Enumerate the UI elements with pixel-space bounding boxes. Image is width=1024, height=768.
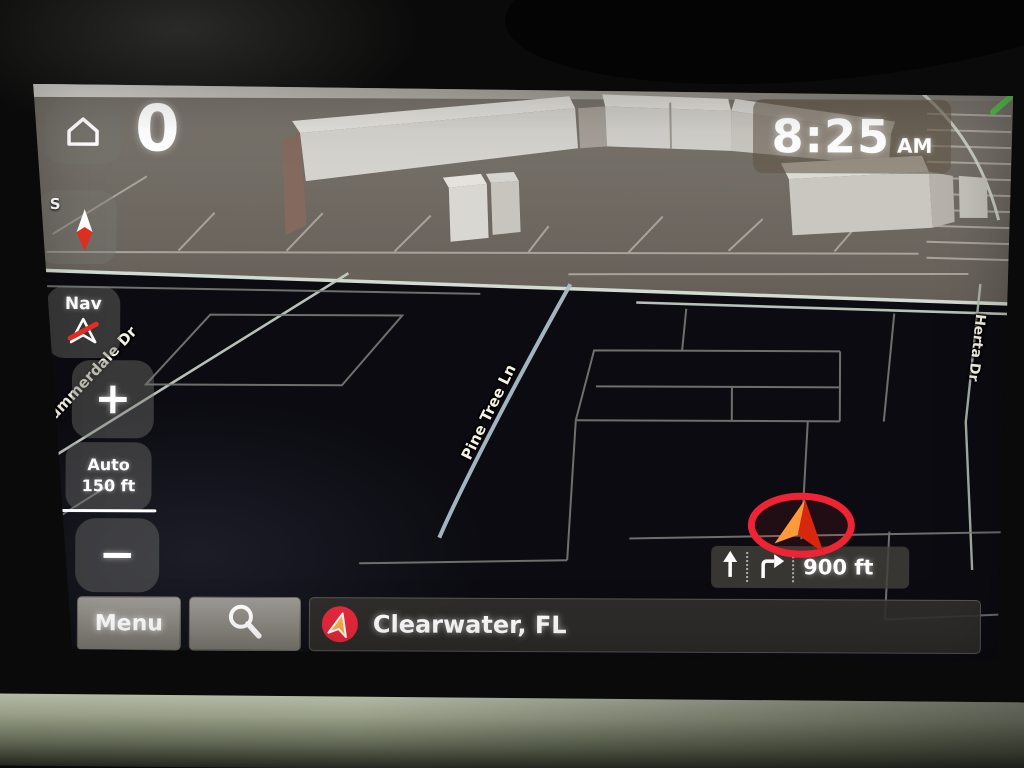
infotainment-screen: Summerdale Dr Pine Tree Ln Herta Dr 0 8:…	[27, 84, 1013, 660]
current-location-text: Clearwater, FL	[373, 610, 567, 639]
clock-panel: 8:25 AM	[753, 99, 951, 174]
compass-cardinal-label: S	[50, 195, 61, 213]
zoom-in-button[interactable]: +	[72, 360, 154, 438]
dashboard-trim	[0, 693, 1024, 768]
home-icon	[63, 113, 103, 151]
vehicle-position-marker	[743, 485, 863, 564]
scale-bar	[60, 509, 156, 512]
clock-meridiem: AM	[897, 134, 932, 158]
scale-auto-button[interactable]: Auto 150 ft	[65, 442, 151, 510]
clock-time: 8:25	[772, 109, 891, 164]
location-arrow-badge-icon	[322, 606, 358, 642]
nav-button[interactable]: Nav	[46, 286, 120, 358]
current-location-bar[interactable]: Clearwater, FL	[309, 597, 981, 654]
compass-needle-icon	[72, 207, 96, 257]
trim-shading	[0, 693, 1024, 768]
zoom-out-label: −	[99, 533, 136, 577]
menu-button[interactable]: Menu	[77, 596, 181, 650]
dashboard-photo: Summerdale Dr Pine Tree Ln Herta Dr 0 8:…	[0, 0, 1024, 768]
nav-arrow-muted-icon	[65, 315, 101, 351]
search-button[interactable]	[189, 597, 301, 651]
scale-value-label: 150 ft	[82, 476, 136, 497]
compass-button[interactable]: S	[38, 190, 116, 264]
nav-button-label: Nav	[65, 294, 102, 314]
straight-arrow-icon	[721, 550, 739, 584]
magnifier-icon	[226, 603, 264, 645]
zoom-in-label: +	[94, 377, 131, 421]
scale-mode-label: Auto	[87, 455, 130, 476]
speed-readout: 0	[135, 92, 180, 166]
home-button[interactable]	[45, 100, 121, 164]
zoom-out-button[interactable]: −	[75, 518, 159, 592]
